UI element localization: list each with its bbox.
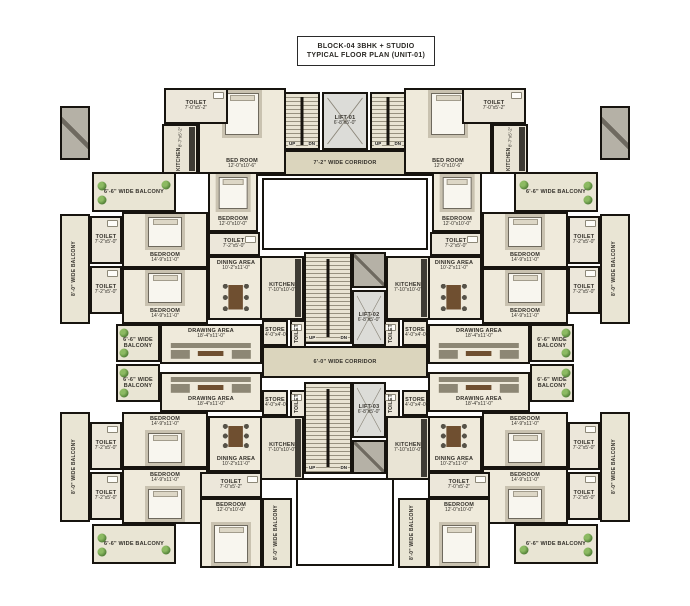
bed-icon <box>219 177 248 209</box>
dining-icon <box>219 421 252 451</box>
room-duct-right <box>600 106 630 160</box>
room-ur-dining: DINING AREA10'-2"x11'-0" <box>426 256 482 320</box>
room-lr-toilet-b: TOILET7'-2"x5'-0" <box>568 422 600 470</box>
room-label: 8'-0" WIDE BALCONY <box>72 216 78 322</box>
bed-icon <box>148 433 182 463</box>
title-line1: BLOCK-04 3BHK + STUDIO <box>317 43 414 50</box>
stair-dn-label: DN <box>394 142 403 147</box>
room-label: BEDROOM12'-0"x10'-0" <box>431 502 487 514</box>
room-balcony-mid-right-up: 6'-6" WIDE BALCONY <box>530 324 574 362</box>
dining-icon <box>437 280 470 315</box>
room-lift-top: LIFT-016'-8"x5'-0" <box>322 92 368 150</box>
bed-icon <box>442 525 476 563</box>
bed-icon <box>508 489 542 519</box>
room-lift-bottom: LIFT-036'-8"x5'-0" <box>352 382 386 438</box>
room-shaft-mid-top <box>352 252 386 288</box>
room-ul-toilet-c: TOILET7'-2"x5'-0" <box>208 232 260 256</box>
room-ul-dining: DINING AREA10'-2"x11'-0" <box>208 256 264 320</box>
room-studio-bl-toilet: TOILET7'-0"x5'-2" <box>200 472 262 498</box>
room-ur-store: STORE4'-0"x4'-0" <box>402 320 428 346</box>
room-ul-balcony-corner: 6'-6" WIDE BALCONY <box>92 172 176 212</box>
room-ur-kitchen: KITCHEN7'-10"x10'-0" <box>386 256 430 320</box>
room-label: STORE4'-0"x4'-0" <box>265 397 285 409</box>
room-stair-mid-bottom: UPDN <box>304 382 352 474</box>
bed-icon <box>148 217 182 247</box>
title-line2: TYPICAL FLOOR PLAN (UNIT-01) <box>307 52 425 59</box>
room-label: BED ROOM12'-0"x10'-6" <box>201 158 283 170</box>
room-label: TOILET7'-2"x5'-0" <box>571 490 597 502</box>
room-label: 6'-6" WIDE BALCONY <box>533 337 571 349</box>
room-stair-mid-top: UPDN <box>304 252 352 344</box>
room-lr-drawing: DRAWING AREA18'-4"x11'-0" <box>428 372 530 412</box>
stair-up-label: UP <box>374 142 382 147</box>
stair-up-label: UP <box>308 336 316 341</box>
room-lr-wc: TOILET <box>384 390 400 418</box>
room-ul-kitchen: KITCHEN7'-10"x10'-0" <box>260 256 304 320</box>
room-ur-balcony-corner: 6'-6" WIDE BALCONY <box>514 172 598 212</box>
room-lr-bedroom-2: BEDROOM14'-9"x11'-0" <box>482 412 568 468</box>
bed-icon <box>508 273 542 303</box>
room-label: 6'-6" WIDE BALCONY <box>95 541 173 547</box>
room-label: BEDROOM14'-9"x11'-0" <box>125 416 205 428</box>
room-ll-bedroom-1: BEDROOM14'-9"x11'-0" <box>122 468 208 524</box>
room-ll-dining: DINING AREA10'-2"x11'-0" <box>208 416 264 472</box>
room-label: BEDROOM14'-9"x11'-0" <box>485 472 565 484</box>
room-ur-bedroom-2: BEDROOM14'-9"x11'-0" <box>482 268 568 324</box>
room-label: LIFT-036'-8"x5'-0" <box>355 404 383 416</box>
room-studio-bl-balcony: 8'-0" WIDE BALCONY <box>262 498 292 568</box>
room-label: DINING AREA10'-2"x11'-0" <box>211 456 261 468</box>
room-studio-tr-kitchen: KITCHEN8'-7"x5'-2" <box>492 124 528 174</box>
room-label: KITCHEN7'-10"x10'-0" <box>263 282 301 294</box>
room-label: BEDROOM14'-9"x11'-0" <box>125 252 205 264</box>
stair-up-label: UP <box>288 142 296 147</box>
room-label: TOILET7'-2"x5'-0" <box>433 238 479 250</box>
room-ul-drawing: DRAWING AREA18'-4"x11'-0" <box>160 324 262 364</box>
room-label: BEDROOM14'-9"x11'-0" <box>125 308 205 320</box>
room-ul-store: STORE4'-0"x4'-0" <box>262 320 288 346</box>
room-label: BEDROOM14'-9"x11'-0" <box>485 252 565 264</box>
room-label: KITCHEN7'-10"x10'-0" <box>263 442 301 454</box>
room-ur-drawing: DRAWING AREA18'-4"x11'-0" <box>428 324 530 364</box>
sofa-icon <box>171 377 251 393</box>
title-box: BLOCK-04 3BHK + STUDIO TYPICAL FLOOR PLA… <box>297 36 435 66</box>
room-lr-balcony-corner: 6'-6" WIDE BALCONY <box>514 524 598 564</box>
room-label: BED ROOM12'-0"x10'-6" <box>407 158 489 170</box>
stair-rail <box>327 389 330 466</box>
room-label: BEDROOM12'-0"x10'-0" <box>435 216 479 228</box>
room-ur-toilet-a: TOILET7'-2"x5'-0" <box>568 216 600 264</box>
room-label: 8'-0" WIDE BALCONY <box>612 414 618 520</box>
room-ul-wc: TOILET <box>290 320 306 348</box>
room-void-bottom <box>296 478 394 566</box>
room-ur-toilet-c: TOILET7'-2"x5'-0" <box>430 232 482 256</box>
room-shaft-mid-bottom <box>352 440 386 474</box>
room-label: TOILET7'-0"x5'-2" <box>431 479 487 491</box>
stair-rail <box>301 97 304 145</box>
room-label: TOILET7'-0"x5'-2" <box>167 100 225 112</box>
room-label: TOILET7'-2"x5'-0" <box>571 234 597 246</box>
plant-icon <box>561 389 570 398</box>
room-ul-bedroom-3: BEDROOM12'-0"x10'-0" <box>208 172 258 232</box>
room-label: BEDROOM12'-0"x10'-0" <box>211 216 255 228</box>
room-ll-toilet-a: TOILET7'-2"x5'-0" <box>90 472 122 520</box>
stair-rail <box>387 97 390 145</box>
room-ul-toilet-b: TOILET7'-2"x5'-0" <box>90 266 122 314</box>
room-balcony-mid-right-dn: 6'-6" WIDE BALCONY <box>530 364 574 402</box>
room-balcony-mid-left-up: 6'-6" WIDE BALCONY <box>116 324 160 362</box>
bed-icon <box>431 93 465 135</box>
room-label: STORE4'-0"x4'-0" <box>405 327 425 339</box>
bed-icon <box>508 217 542 247</box>
plant-icon <box>584 195 593 204</box>
room-label: TOILET <box>389 392 395 416</box>
plant-icon <box>584 547 593 556</box>
room-ur-toilet-b: TOILET7'-2"x5'-0" <box>568 266 600 314</box>
room-label: 8'-0" WIDE BALCONY <box>72 414 78 520</box>
room-label: TOILET <box>389 322 395 346</box>
room-label: TOILET7'-2"x5'-0" <box>571 284 597 296</box>
room-label: DINING AREA10'-2"x11'-0" <box>429 456 479 468</box>
room-label: BEDROOM14'-9"x11'-0" <box>485 416 565 428</box>
room-label: KITCHEN8'-7"x5'-2" <box>177 126 183 172</box>
dining-icon <box>219 280 252 315</box>
stair-dn-label: DN <box>340 466 349 471</box>
room-label: TOILET7'-2"x5'-0" <box>93 234 119 246</box>
sofa-icon <box>439 377 519 393</box>
room-ul-bedroom-2: BEDROOM14'-9"x11'-0" <box>122 268 208 324</box>
room-void-courtyard <box>262 178 428 250</box>
room-lr-kitchen: KITCHEN7'-10"x10'-0" <box>386 416 430 480</box>
room-ll-toilet-b: TOILET7'-2"x5'-0" <box>90 422 122 470</box>
room-studio-br-toilet: TOILET7'-0"x5'-2" <box>428 472 490 498</box>
plant-icon <box>520 546 529 555</box>
room-studio-bl-bedroom: BEDROOM12'-0"x10'-0" <box>200 498 262 568</box>
room-label: STORE4'-0"x4'-0" <box>405 397 425 409</box>
sofa-icon <box>171 343 251 359</box>
room-lr-bedroom-1: BEDROOM14'-9"x11'-0" <box>482 468 568 524</box>
room-corridor-center: 6'-0" WIDE CORRIDOR <box>262 346 428 378</box>
room-studio-tl-kitchen: KITCHEN8'-7"x5'-2" <box>162 124 198 174</box>
room-label: TOILET <box>295 322 301 346</box>
room-lr-toilet-a: TOILET7'-2"x5'-0" <box>568 472 600 520</box>
room-label: TOILET7'-2"x5'-0" <box>93 490 119 502</box>
plant-icon <box>98 547 107 556</box>
stair-dn-label: DN <box>340 336 349 341</box>
room-label: 6'-6" WIDE BALCONY <box>517 541 595 547</box>
room-label: BEDROOM14'-9"x11'-0" <box>125 472 205 484</box>
room-label: KITCHEN7'-10"x10'-0" <box>389 442 427 454</box>
room-label: DRAWING AREA18'-4"x11'-0" <box>163 396 259 408</box>
room-label: DRAWING AREA18'-4"x11'-0" <box>163 328 259 340</box>
room-ur-balcony-edge: 8'-0" WIDE BALCONY <box>600 214 630 324</box>
plant-icon <box>561 349 570 358</box>
room-lr-balcony-edge: 8'-0" WIDE BALCONY <box>600 412 630 522</box>
room-label: DINING AREA10'-2"x11'-0" <box>211 260 261 272</box>
room-ll-drawing: DRAWING AREA18'-4"x11'-0" <box>160 372 262 412</box>
bed-icon <box>148 489 182 519</box>
room-label: DINING AREA10'-2"x11'-0" <box>429 260 479 272</box>
plant-icon <box>120 349 129 358</box>
room-lr-dining: DINING AREA10'-2"x11'-0" <box>426 416 482 472</box>
room-label: 6'-6" WIDE BALCONY <box>119 337 157 349</box>
plant-icon <box>98 195 107 204</box>
plant-icon <box>162 546 171 555</box>
room-ul-balcony-edge: 8'-0" WIDE BALCONY <box>60 214 90 324</box>
room-label: TOILET7'-2"x5'-0" <box>93 440 119 452</box>
room-label: TOILET7'-2"x5'-0" <box>211 238 257 250</box>
room-ur-bedroom-3: BEDROOM12'-0"x10'-0" <box>432 172 482 232</box>
room-label: BEDROOM14'-9"x11'-0" <box>485 308 565 320</box>
stair-up-label: UP <box>308 466 316 471</box>
room-studio-tr-toilet: TOILET7'-0"x5'-2" <box>462 88 526 124</box>
stair-rail <box>327 259 330 336</box>
room-label: TOILET7'-0"x5'-2" <box>465 100 523 112</box>
room-ll-balcony-edge: 8'-0" WIDE BALCONY <box>60 412 90 522</box>
room-ll-wc: TOILET <box>290 390 306 418</box>
room-label: 6'-6" WIDE BALCONY <box>95 189 173 195</box>
room-balcony-mid-left-dn: 6'-6" WIDE BALCONY <box>116 364 160 402</box>
room-ll-balcony-corner: 6'-6" WIDE BALCONY <box>92 524 176 564</box>
room-label: BEDROOM12'-0"x10'-0" <box>203 502 259 514</box>
room-label: 8'-0" WIDE BALCONY <box>274 500 280 566</box>
room-label: STORE4'-0"x4'-0" <box>265 327 285 339</box>
room-label: 6'-6" WIDE BALCONY <box>119 377 157 389</box>
room-lift-mid: LIFT-026'-8"x5'-0" <box>352 290 386 346</box>
room-studio-tl-toilet: TOILET7'-0"x5'-2" <box>164 88 228 124</box>
page: BLOCK-04 3BHK + STUDIO TYPICAL FLOOR PLA… <box>0 0 690 606</box>
room-ur-bedroom-1: BEDROOM14'-9"x11'-0" <box>482 212 568 268</box>
room-studio-br-bedroom: BEDROOM12'-0"x10'-0" <box>428 498 490 568</box>
room-label: 8'-0" WIDE BALCONY <box>410 500 416 566</box>
dining-icon <box>437 421 470 451</box>
sofa-icon <box>439 343 519 359</box>
room-label: KITCHEN7'-10"x10'-0" <box>389 282 427 294</box>
bed-icon <box>148 273 182 303</box>
room-label: KITCHEN8'-7"x5'-2" <box>507 126 513 172</box>
room-ul-toilet-a: TOILET7'-2"x5'-0" <box>90 216 122 264</box>
room-label: DRAWING AREA18'-4"x11'-0" <box>431 328 527 340</box>
room-label: TOILET7'-0"x5'-2" <box>203 479 259 491</box>
room-ur-wc: TOILET <box>384 320 400 348</box>
room-ll-kitchen: KITCHEN7'-10"x10'-0" <box>260 416 304 480</box>
room-lr-store: STORE4'-0"x4'-0" <box>402 390 428 416</box>
room-label: DRAWING AREA18'-4"x11'-0" <box>431 396 527 408</box>
plant-icon <box>120 389 129 398</box>
room-label: 8'-0" WIDE BALCONY <box>612 216 618 322</box>
room-ul-bedroom-1: BEDROOM14'-9"x11'-0" <box>122 212 208 268</box>
room-label: LIFT-026'-8"x5'-0" <box>355 312 383 324</box>
stair-dn-label: DN <box>308 142 317 147</box>
room-label: 6'-6" WIDE BALCONY <box>517 189 595 195</box>
room-duct-left <box>60 106 90 160</box>
room-stair-top-left: UPDN <box>284 92 320 150</box>
room-label: TOILET <box>295 392 301 416</box>
room-ll-store: STORE4'-0"x4'-0" <box>262 390 288 416</box>
bed-icon <box>508 433 542 463</box>
room-label: TOILET7'-2"x5'-0" <box>93 284 119 296</box>
floor-plan: 7'-2" WIDE CORRIDOR6'-0" WIDE CORRIDORBE… <box>0 0 690 606</box>
room-label: 6'-6" WIDE BALCONY <box>533 377 571 389</box>
room-label: 6'-0" WIDE CORRIDOR <box>265 359 425 365</box>
room-ll-bedroom-2: BEDROOM14'-9"x11'-0" <box>122 412 208 468</box>
bed-icon <box>214 525 248 563</box>
room-label: LIFT-016'-8"x5'-0" <box>325 115 365 127</box>
bed-icon <box>225 93 259 135</box>
room-stair-top-right: UPDN <box>370 92 406 150</box>
room-studio-br-balcony: 8'-0" WIDE BALCONY <box>398 498 428 568</box>
bed-icon <box>443 177 472 209</box>
room-label: TOILET7'-2"x5'-0" <box>571 440 597 452</box>
